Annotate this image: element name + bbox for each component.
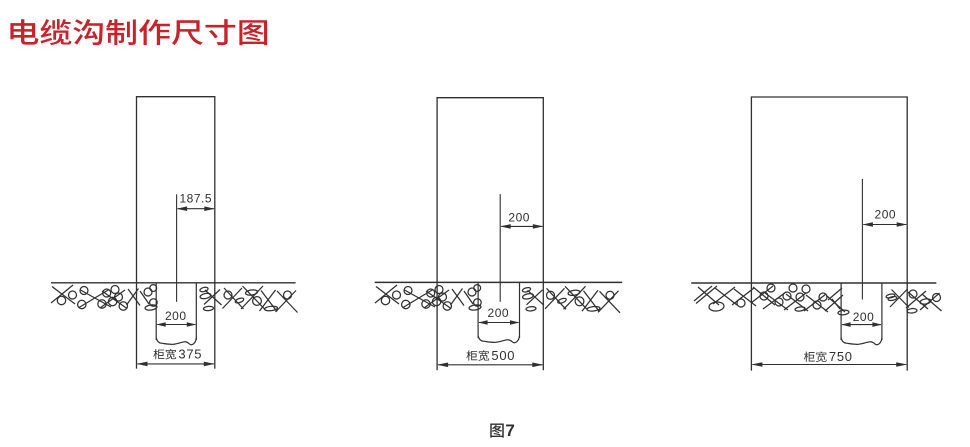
- svg-text:750: 750: [829, 349, 853, 364]
- svg-text:200: 200: [165, 309, 187, 323]
- svg-text:7: 7: [505, 421, 514, 440]
- svg-text:200: 200: [488, 306, 510, 320]
- svg-text:200: 200: [853, 310, 875, 324]
- svg-text:200: 200: [875, 208, 897, 222]
- svg-text:187.5: 187.5: [180, 191, 213, 205]
- svg-text:500: 500: [491, 348, 515, 363]
- svg-text:375: 375: [178, 346, 202, 361]
- svg-text:200: 200: [508, 210, 530, 224]
